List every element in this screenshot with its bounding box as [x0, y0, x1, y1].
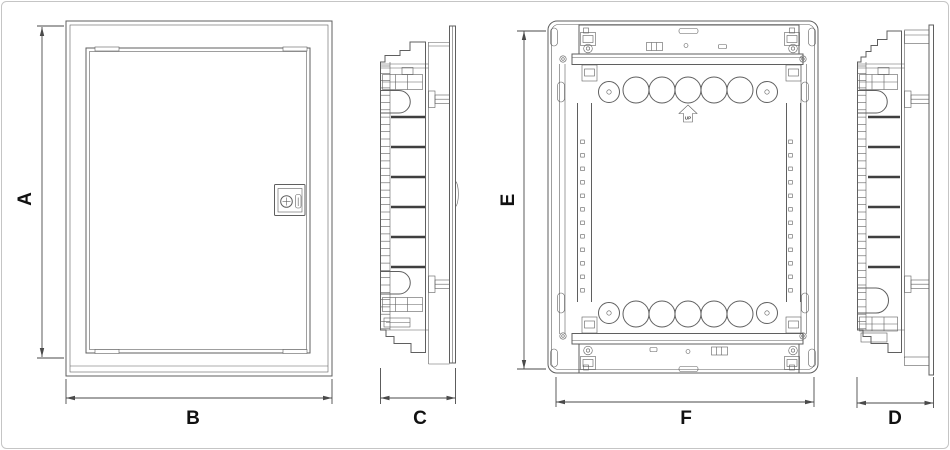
dimension-f-label: F — [680, 408, 692, 429]
door-hinge-mark — [95, 47, 119, 51]
dimension-e-label: E — [498, 194, 519, 207]
dimension-d-label: D — [888, 408, 902, 429]
dimension-b-label: B — [186, 408, 200, 429]
door-hinge-mark — [95, 350, 119, 354]
lock-body — [275, 185, 306, 216]
door-lock — [275, 185, 306, 216]
enclosure-dimension-drawing: A B — [0, 0, 950, 450]
door-hinge-mark — [283, 47, 307, 51]
up-marker-label: UP — [685, 116, 691, 121]
technical-drawing-page: A B — [0, 0, 950, 450]
dimension-c-label: C — [413, 408, 427, 429]
door-hinge-mark — [283, 350, 307, 354]
dimension-a-label: A — [15, 192, 36, 206]
